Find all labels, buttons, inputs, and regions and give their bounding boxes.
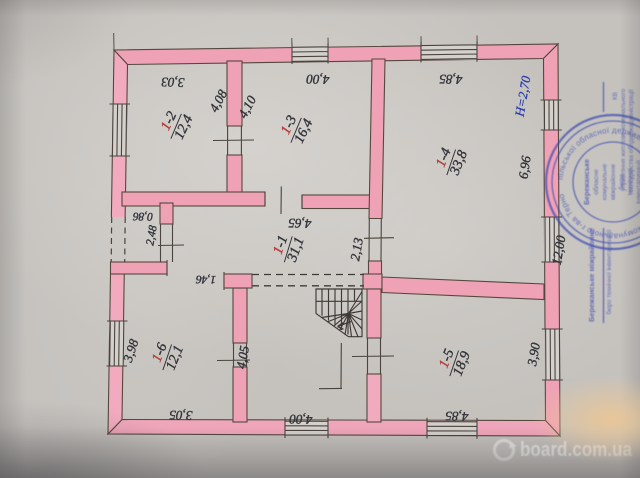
- svg-text:господарства облдержадміністра: господарства облдержадміністрації: [627, 89, 635, 195]
- svg-text:4,00: 4,00: [289, 412, 313, 427]
- svg-text:6,96: 6,96: [516, 155, 534, 180]
- svg-text:4,05: 4,05: [233, 344, 252, 370]
- svg-text:міжрайонне: міжрайонне: [609, 164, 617, 200]
- svg-text:3,03: 3,03: [161, 75, 186, 91]
- svg-text:4,85: 4,85: [439, 72, 463, 87]
- svg-text:2,48: 2,48: [144, 224, 159, 246]
- svg-text:комунальне: комунальне: [602, 163, 609, 200]
- svg-text:бюро технічної інвентаризації: бюро технічної інвентаризації: [606, 229, 613, 314]
- svg-text:3,05: 3,05: [169, 408, 194, 423]
- svg-text:КВ: КВ: [612, 92, 619, 100]
- svg-text:0,86: 0,86: [133, 210, 154, 222]
- svg-text:4,00: 4,00: [306, 72, 330, 87]
- svg-text:4,65: 4,65: [288, 216, 312, 231]
- svg-text:3,90: 3,90: [524, 341, 543, 368]
- svg-text:обласне: обласне: [592, 169, 600, 195]
- svg-text:H=2,70: H=2,70: [511, 74, 533, 118]
- svg-text:2,13: 2,13: [347, 236, 366, 262]
- svg-text:1,46: 1,46: [196, 273, 217, 285]
- svg-text:інвентаризації: інвентаризації: [635, 160, 640, 204]
- svg-text:Бережанське міжрайонне: Бережанське міжрайонне: [587, 228, 596, 322]
- svg-text:Бережанське: Бережанське: [584, 159, 591, 205]
- svg-text:4,85: 4,85: [445, 409, 469, 424]
- svg-text:board.com.ua: board.com.ua: [520, 439, 633, 461]
- svg-text:управління житлово-комунальног: управління житлово-комунального: [619, 88, 627, 191]
